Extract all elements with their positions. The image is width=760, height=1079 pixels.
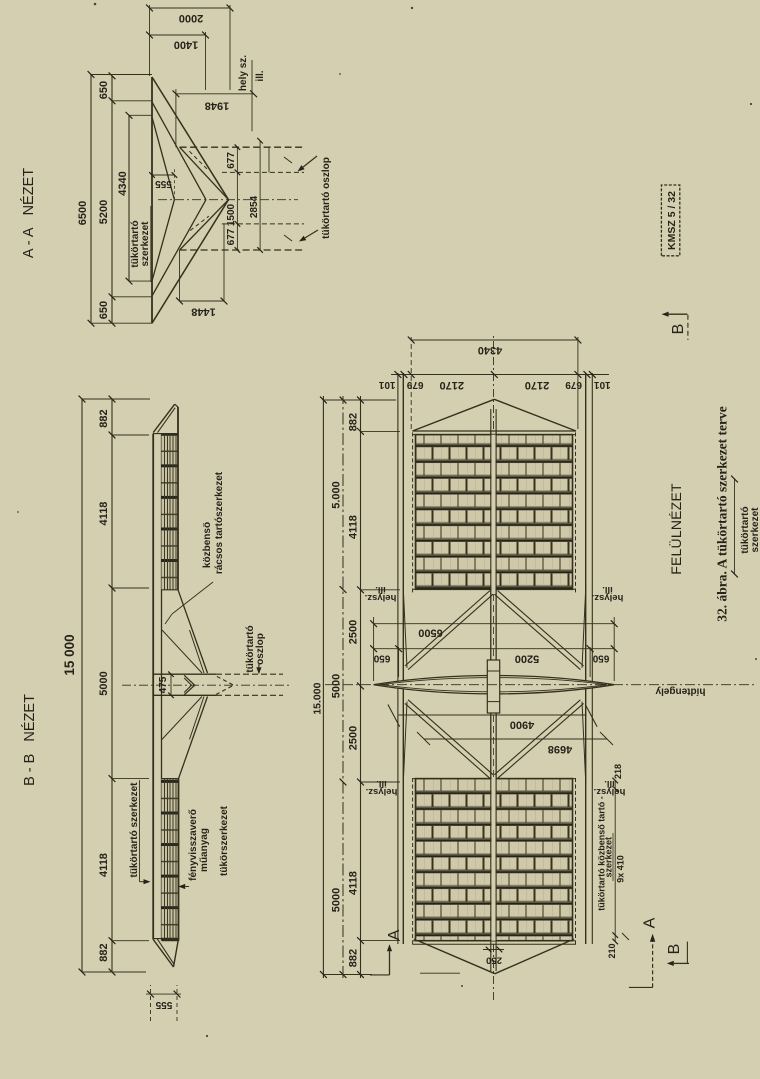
svg-text:9x 410: 9x 410 xyxy=(616,855,626,883)
svg-text:4118: 4118 xyxy=(348,515,360,539)
svg-text:4698: 4698 xyxy=(548,743,572,755)
svg-text:6500: 6500 xyxy=(77,201,89,225)
svg-text:882: 882 xyxy=(348,949,360,967)
svg-text:5000: 5000 xyxy=(331,674,343,698)
svg-text:650: 650 xyxy=(373,653,390,664)
svg-text:15.000: 15.000 xyxy=(312,682,324,714)
svg-text:2170: 2170 xyxy=(439,379,463,391)
svg-text:tükörtartó oszlop: tükörtartó oszlop xyxy=(321,157,332,239)
svg-text:A - A NÉZET: A - A NÉZET xyxy=(20,168,37,258)
svg-text:szerkezet: szerkezet xyxy=(750,507,760,553)
svg-text:tükörszerkezet: tükörszerkezet xyxy=(219,805,230,876)
svg-text:210: 210 xyxy=(607,943,617,958)
svg-text:FELÜLNÉZET: FELÜLNÉZET xyxy=(667,483,684,575)
svg-text:A: A xyxy=(642,917,659,928)
svg-text:882: 882 xyxy=(348,413,360,431)
svg-text:oszlop: oszlop xyxy=(255,633,266,665)
svg-text:hely sz.: hely sz. xyxy=(238,55,249,91)
svg-text:közbensö: közbensö xyxy=(202,522,213,568)
svg-text:2170: 2170 xyxy=(525,379,549,391)
svg-text:6500: 6500 xyxy=(418,627,442,639)
svg-text:4340: 4340 xyxy=(117,171,129,195)
svg-text:4118: 4118 xyxy=(98,853,110,877)
svg-text:679: 679 xyxy=(565,379,582,390)
svg-text:5200: 5200 xyxy=(98,200,110,224)
svg-text:650: 650 xyxy=(98,301,110,319)
svg-text:ill.: ill. xyxy=(604,778,615,789)
svg-text:B: B xyxy=(670,324,687,335)
svg-text:882: 882 xyxy=(98,943,110,961)
svg-text:ill.: ill. xyxy=(255,70,266,81)
svg-text:szerkezet: szerkezet xyxy=(140,221,151,267)
svg-text:B - B NÉZET: B - B NÉZET xyxy=(21,694,38,786)
svg-text:fényvisszaverő: fényvisszaverő xyxy=(188,809,199,881)
svg-text:2000: 2000 xyxy=(179,12,203,24)
svg-text:KMSZ 5 / 32: KMSZ 5 / 32 xyxy=(666,191,678,250)
svg-text:2500: 2500 xyxy=(348,620,360,644)
svg-text:5000: 5000 xyxy=(331,888,343,912)
svg-text:ill.: ill. xyxy=(375,584,386,595)
svg-text:15 000: 15 000 xyxy=(62,634,77,675)
svg-text:rácsos tartószerkezet: rácsos tartószerkezet xyxy=(214,471,225,574)
svg-text:555: 555 xyxy=(155,999,172,1010)
svg-text:ill.: ill. xyxy=(602,584,613,595)
svg-text:650: 650 xyxy=(98,81,110,99)
svg-text:1448: 1448 xyxy=(191,306,215,318)
svg-text:677: 677 xyxy=(226,228,237,245)
svg-text:677: 677 xyxy=(226,152,237,169)
svg-text:A: A xyxy=(386,929,403,940)
svg-text:882: 882 xyxy=(98,409,110,427)
svg-text:1948: 1948 xyxy=(205,100,229,112)
svg-text:2500: 2500 xyxy=(348,726,360,750)
svg-text:ill.: ill. xyxy=(376,778,387,789)
svg-text:4118: 4118 xyxy=(348,871,360,895)
svg-text:555: 555 xyxy=(155,178,172,189)
svg-text:1400: 1400 xyxy=(174,39,198,51)
svg-text:5.000: 5.000 xyxy=(331,481,343,509)
svg-text:32. ábra. A tükörtartó szerkez: 32. ábra. A tükörtartó szerkezet terve xyxy=(715,406,730,622)
svg-text:tükörtartó szerkezet: tükörtartó szerkezet xyxy=(129,782,140,878)
svg-text:5000: 5000 xyxy=(98,671,110,695)
svg-text:B: B xyxy=(666,944,683,955)
svg-text:218: 218 xyxy=(613,764,623,779)
svg-text:679: 679 xyxy=(406,379,423,390)
svg-text:5200: 5200 xyxy=(515,653,539,665)
svg-text:műanyag: műanyag xyxy=(199,828,210,872)
svg-text:szerkezet: szerkezet xyxy=(604,837,614,878)
svg-text:475: 475 xyxy=(158,676,169,693)
svg-text:101: 101 xyxy=(378,379,395,390)
svg-text:4340: 4340 xyxy=(478,344,502,356)
svg-text:650: 650 xyxy=(592,653,609,664)
svg-text:101: 101 xyxy=(594,379,611,390)
svg-text:4118: 4118 xyxy=(98,502,110,526)
svg-text:250: 250 xyxy=(486,955,502,966)
svg-text:4900: 4900 xyxy=(510,719,534,731)
svg-text:1500: 1500 xyxy=(226,203,237,226)
svg-text:2854: 2854 xyxy=(249,195,260,218)
svg-text:hídtengely: hídtengely xyxy=(655,686,705,697)
